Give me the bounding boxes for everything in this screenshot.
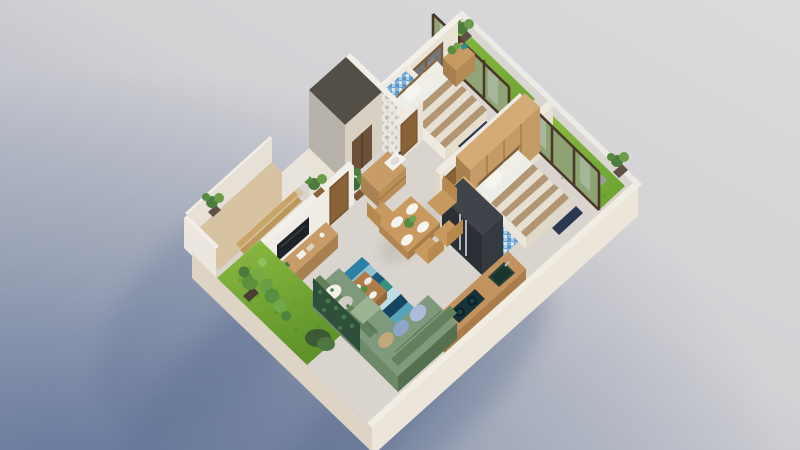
floorplan-svg	[0, 0, 800, 450]
floorplan-render	[0, 0, 800, 450]
